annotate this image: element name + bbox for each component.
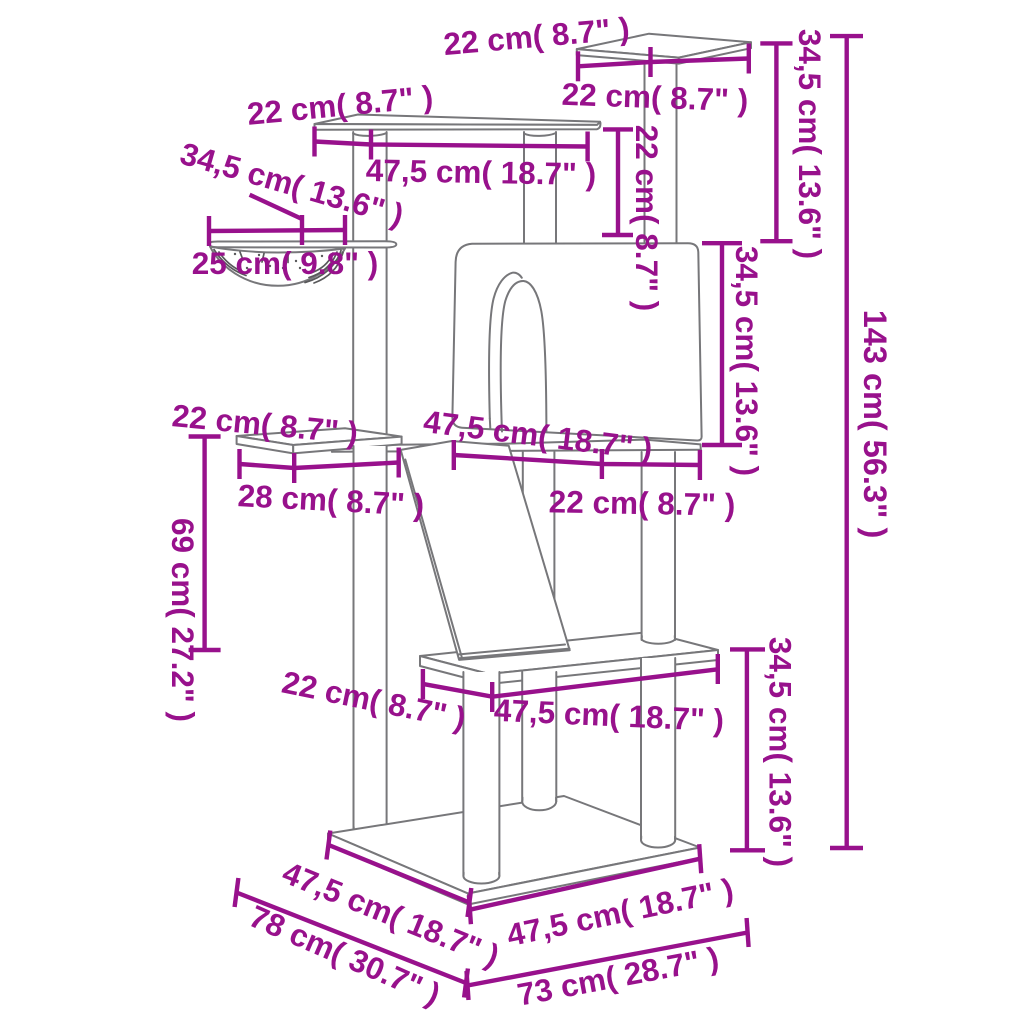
svg-text:22 cm( 8.7" ): 22 cm( 8.7" ) <box>561 76 749 118</box>
svg-text:22 cm( 8.7" ): 22 cm( 8.7" ) <box>629 125 665 312</box>
svg-text:34,5 cm( 13.6" ): 34,5 cm( 13.6" ) <box>763 637 799 867</box>
svg-text:69 cm( 27.2" ): 69 cm( 27.2" ) <box>165 518 201 722</box>
svg-text:34,5 cm( 13.6" ): 34,5 cm( 13.6" ) <box>792 29 828 259</box>
svg-text:47,5 cm( 18.7" ): 47,5 cm( 18.7" ) <box>366 152 597 192</box>
svg-text:143 cm( 56.3" ): 143 cm( 56.3" ) <box>857 310 893 539</box>
svg-text:25 cm( 9.8" ): 25 cm( 9.8" ) <box>192 245 379 281</box>
svg-text:34,5 cm( 13.6" ): 34,5 cm( 13.6" ) <box>729 246 765 476</box>
svg-text:22 cm( 8.7" ): 22 cm( 8.7" ) <box>548 483 735 522</box>
